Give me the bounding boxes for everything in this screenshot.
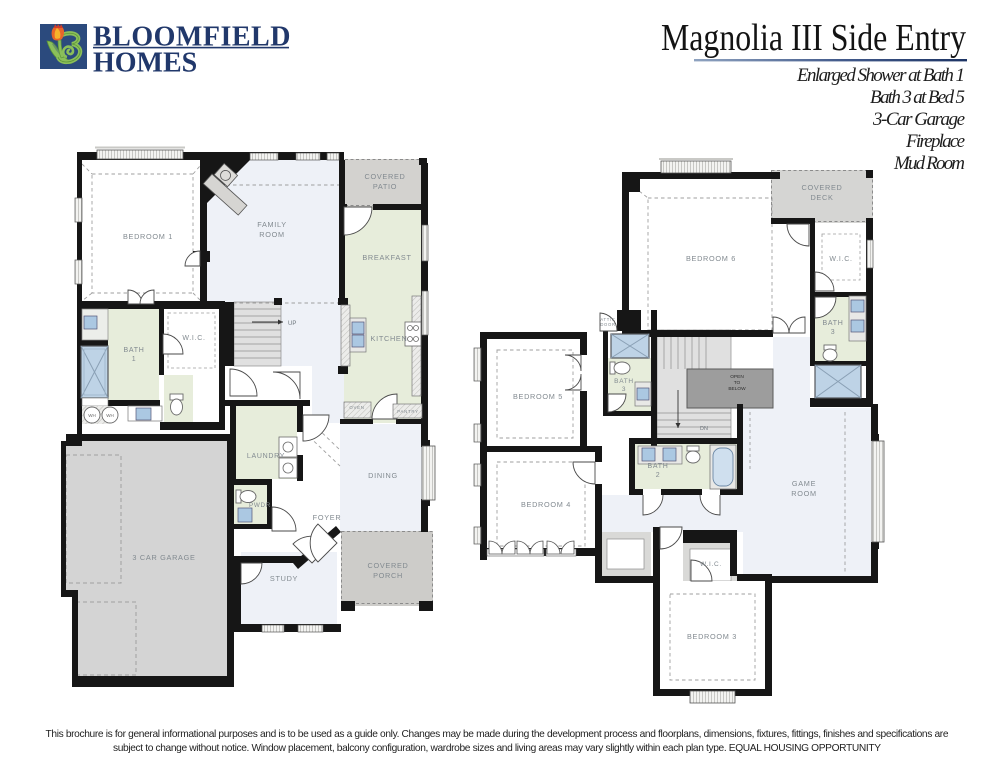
svg-text:W.I.C.: W.I.C. [700, 561, 722, 568]
svg-text:FAMILY: FAMILY [257, 220, 287, 229]
svg-text:subject to change without noti: subject to change without notice. Window… [113, 743, 881, 754]
svg-text:3-Car Garage: 3-Car Garage [872, 109, 965, 130]
svg-text:COVERED: COVERED [365, 172, 406, 181]
svg-text:Bath 3 at Bed 5: Bath 3 at Bed 5 [870, 87, 965, 108]
svg-text:OVEN: OVEN [349, 405, 364, 410]
svg-text:BATH: BATH [124, 347, 145, 354]
svg-text:PATIO: PATIO [373, 182, 397, 191]
svg-text:BEDROOM 3: BEDROOM 3 [687, 632, 737, 641]
svg-text:KITCHEN: KITCHEN [371, 334, 408, 343]
svg-text:2: 2 [656, 472, 661, 479]
svg-text:GAME: GAME [792, 479, 816, 488]
svg-text:PANTRY: PANTRY [397, 409, 419, 414]
svg-text:W.I.C.: W.I.C. [182, 335, 205, 342]
svg-text:BREAKFAST: BREAKFAST [362, 253, 411, 262]
svg-text:LAUNDRY: LAUNDRY [247, 453, 285, 460]
svg-text:TO: TO [734, 380, 741, 386]
svg-text:BATH: BATH [614, 378, 634, 385]
svg-text:BEDROOM 4: BEDROOM 4 [521, 500, 571, 509]
svg-text:W.I.C.: W.I.C. [829, 256, 852, 263]
svg-text:Fireplace: Fireplace [905, 131, 965, 152]
svg-text:BEDROOM 1: BEDROOM 1 [123, 232, 173, 241]
svg-text:COVERED: COVERED [802, 183, 843, 192]
svg-text:ROOM: ROOM [791, 489, 817, 498]
svg-text:COVERED: COVERED [368, 561, 409, 570]
svg-text:BELOW: BELOW [728, 386, 746, 392]
svg-text:OPEN: OPEN [730, 374, 744, 380]
svg-text:HOMES: HOMES [93, 48, 197, 79]
svg-text:DOOR: DOOR [600, 322, 615, 327]
svg-text:DINING: DINING [368, 471, 398, 480]
svg-text:Enlarged Shower at Bath 1: Enlarged Shower at Bath 1 [796, 65, 965, 86]
svg-text:3: 3 [622, 386, 626, 393]
svg-text:1: 1 [132, 356, 137, 363]
svg-text:DN: DN [700, 426, 708, 432]
svg-text:UP: UP [288, 321, 296, 327]
svg-text:FOYER: FOYER [313, 513, 342, 522]
svg-text:This brochure is for general i: This brochure is for general information… [45, 729, 948, 740]
svg-text:3: 3 [831, 329, 836, 336]
svg-text:DECK: DECK [810, 193, 833, 202]
svg-text:Magnolia III Side Entry: Magnolia III Side Entry [661, 17, 966, 59]
svg-text:ROOM: ROOM [259, 230, 285, 239]
svg-text:PWDR: PWDR [249, 502, 271, 509]
svg-text:BEDROOM 5: BEDROOM 5 [513, 392, 563, 401]
svg-text:STUDY: STUDY [270, 574, 298, 583]
svg-text:BATH: BATH [823, 320, 844, 327]
svg-text:WH: WH [106, 413, 114, 418]
svg-text:BEDROOM 6: BEDROOM 6 [686, 254, 736, 263]
svg-text:BATH: BATH [648, 463, 669, 470]
svg-text:Mud Room: Mud Room [893, 153, 965, 174]
svg-text:3 CAR GARAGE: 3 CAR GARAGE [132, 553, 195, 562]
svg-text:WH: WH [88, 413, 96, 418]
svg-text:PORCH: PORCH [373, 571, 403, 580]
